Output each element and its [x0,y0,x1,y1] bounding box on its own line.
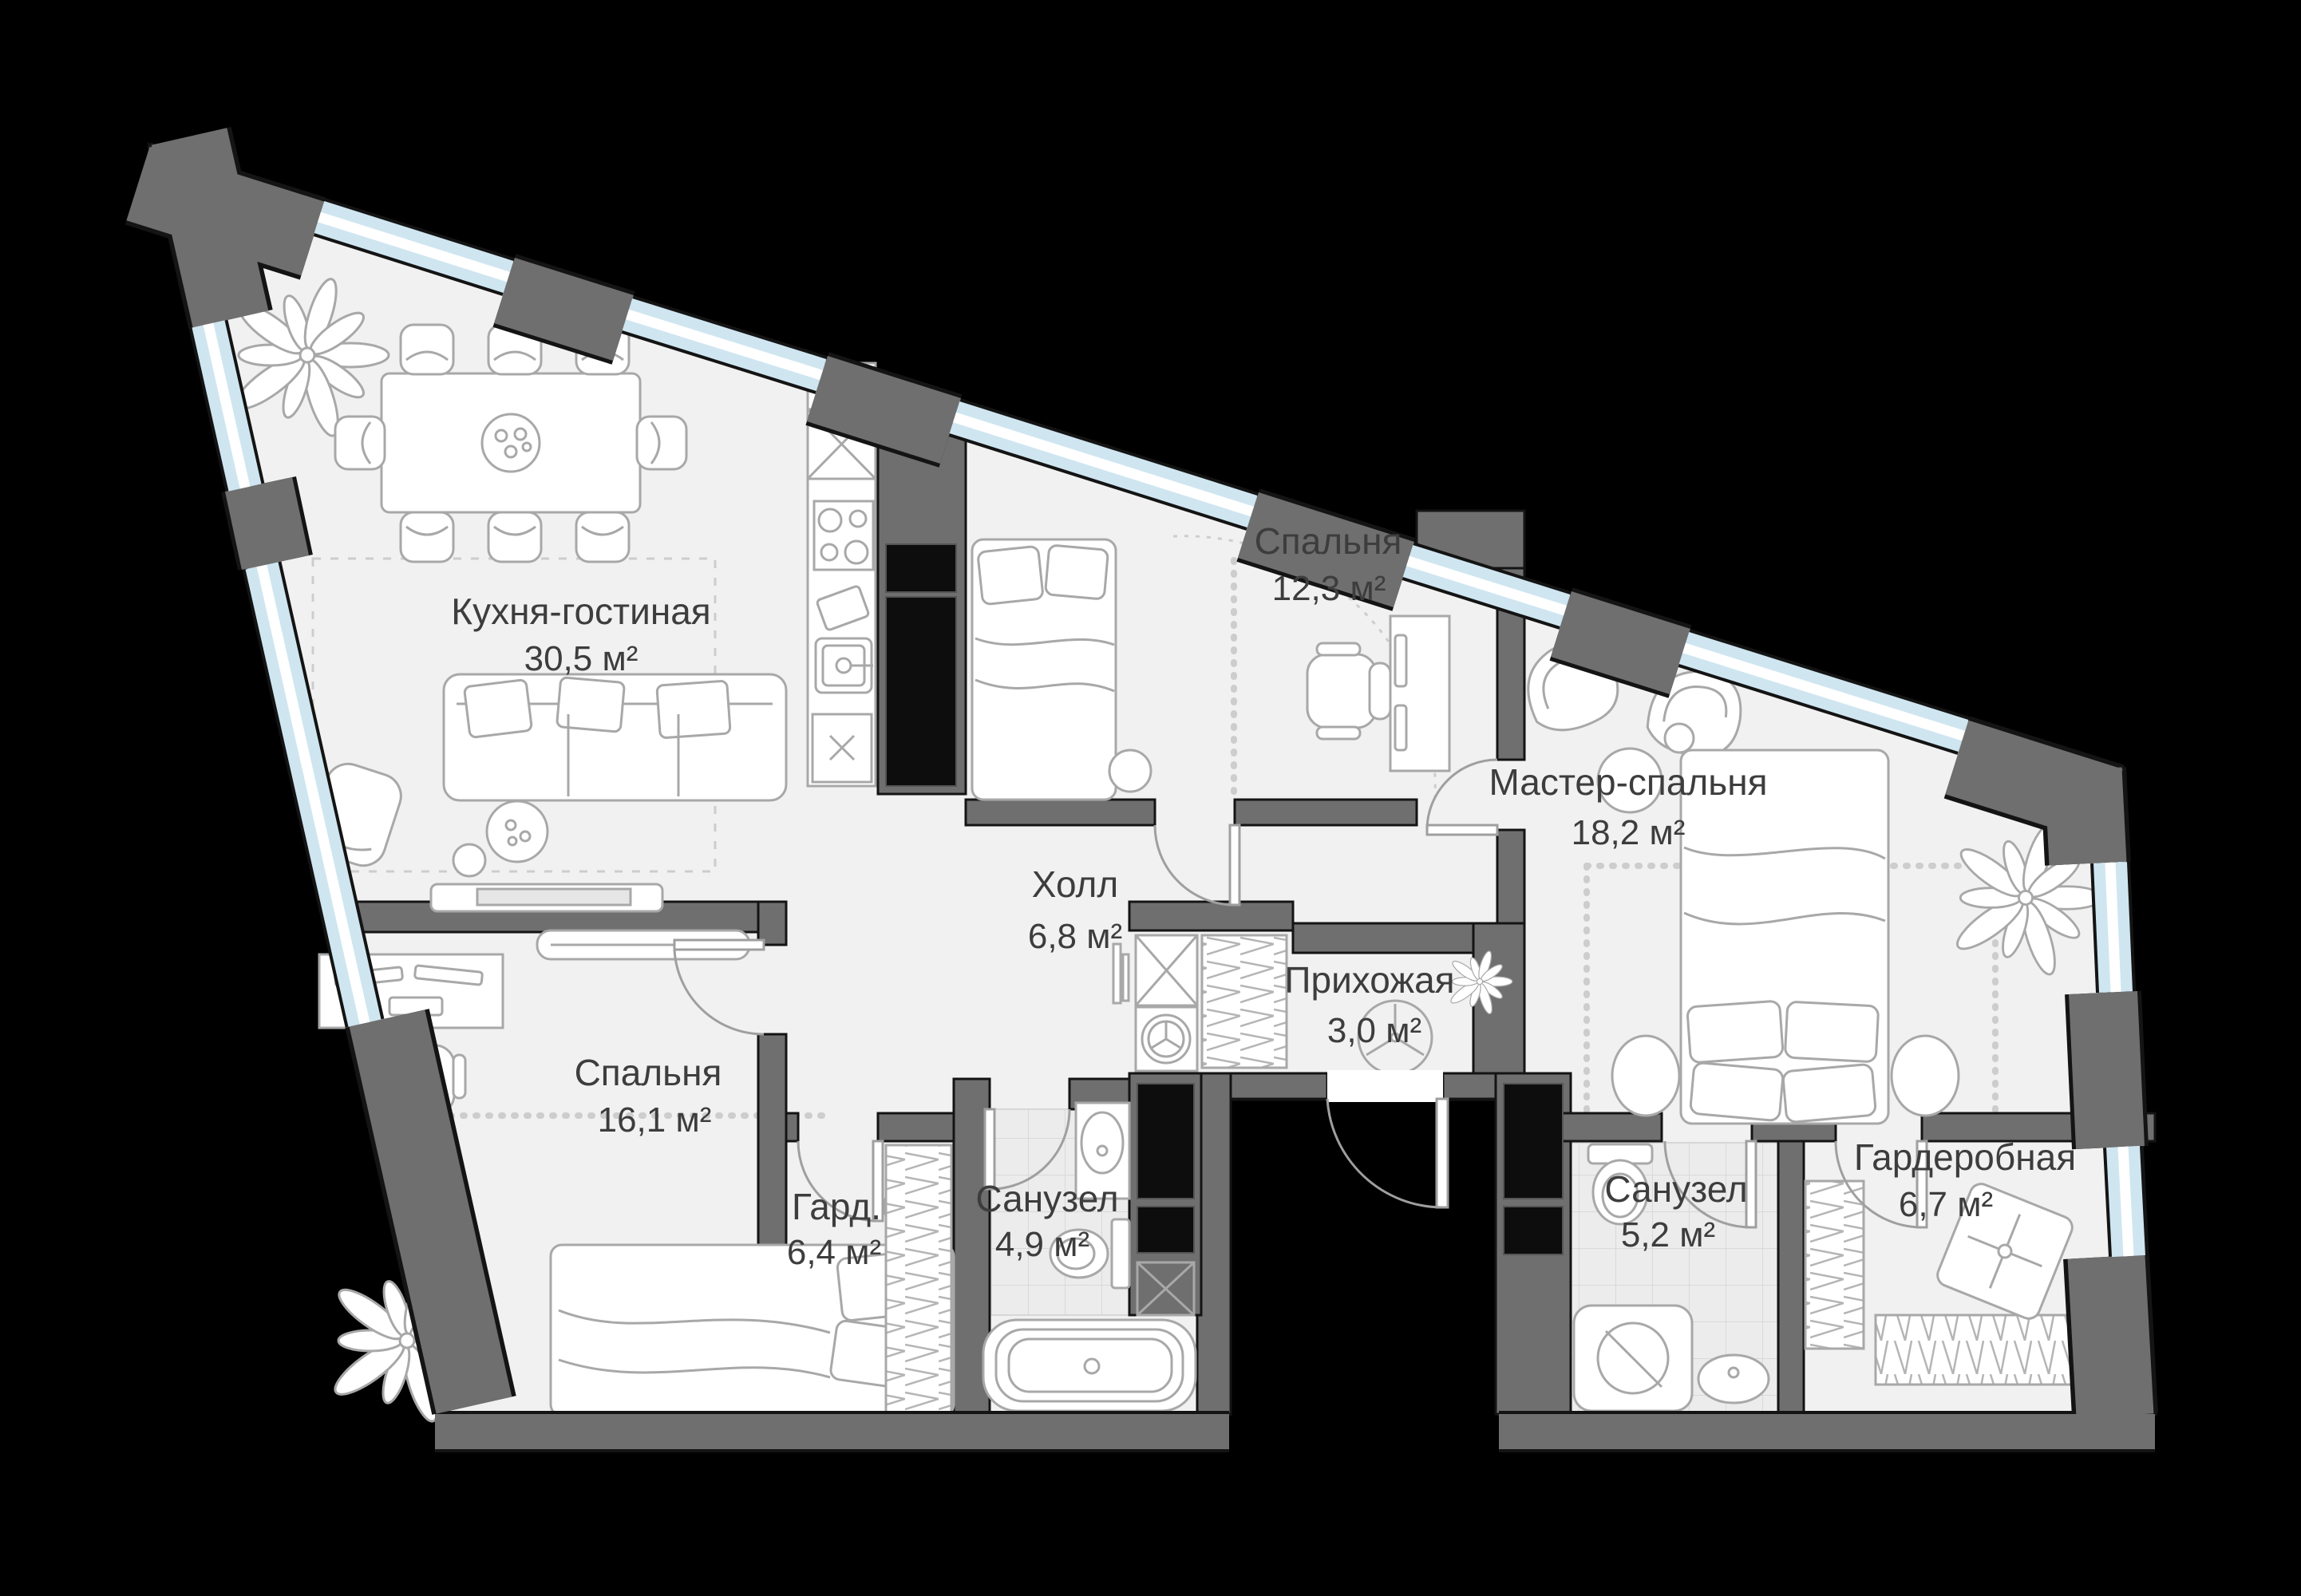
room-area-bedroom-16: 16,1 м² [598,1100,712,1140]
room-area-gard: 6,4 м² [787,1233,881,1272]
shower-icon [1574,1306,1692,1411]
room-label-bathroom-49: Санузел [975,1178,1118,1219]
room-area-bathroom-52: 5,2 м² [1621,1215,1715,1254]
washing-machine-icon [1142,1015,1190,1063]
room-area-wardrobe: 6,7 м² [1899,1185,1993,1224]
room-label-entry: Прихожая [1284,959,1454,1001]
room-area-bedroom-12: 12,3 м² [1272,569,1386,608]
room-label-hall: Холл [1032,863,1118,905]
room-area-bathroom-49: 4,9 м² [995,1225,1089,1264]
bedside-pouf [1612,1036,1679,1116]
room-label-gard: Гард. [792,1186,881,1227]
floor-plan-canvas: Кухня-гостиная 30,5 м² Спальня 12,3 м² М… [0,0,2301,1596]
room-area-hall: 6,8 м² [1028,917,1122,956]
hall-closet [1136,935,1287,1071]
stove-icon [814,501,873,570]
bedside-pouf [1892,1036,1959,1116]
sofa [444,674,786,800]
bed-single [972,539,1116,800]
room-label-bedroom-16: Спальня [575,1052,722,1093]
room-label-bedroom-12: Спальня [1255,520,1402,562]
bedside-pouf [1109,750,1151,792]
room-label-bathroom-52: Санузел [1604,1168,1747,1210]
tv-console [431,884,662,911]
desk-bedroom-12 [1390,616,1449,771]
room-label-wardrobe: Гардеробная [1854,1136,2076,1178]
sink-icon [1698,1355,1769,1403]
bathtub-icon [983,1320,1196,1411]
dining-table [382,373,640,512]
sink-icon [1081,1112,1123,1173]
room-area-kitchen-living: 30,5 м² [524,639,639,678]
room-label-kitchen-living: Кухня-гостиная [451,591,710,632]
room-label-master-bedroom: Мастер-спальня [1489,761,1767,803]
room-area-master-bedroom: 18,2 м² [1572,813,1686,852]
side-table [1665,724,1694,753]
bed-double [1681,750,1888,1124]
kitchen-sink-icon [816,638,873,693]
gard-closet [886,1145,951,1412]
room-area-entry: 3,0 м² [1327,1011,1421,1050]
